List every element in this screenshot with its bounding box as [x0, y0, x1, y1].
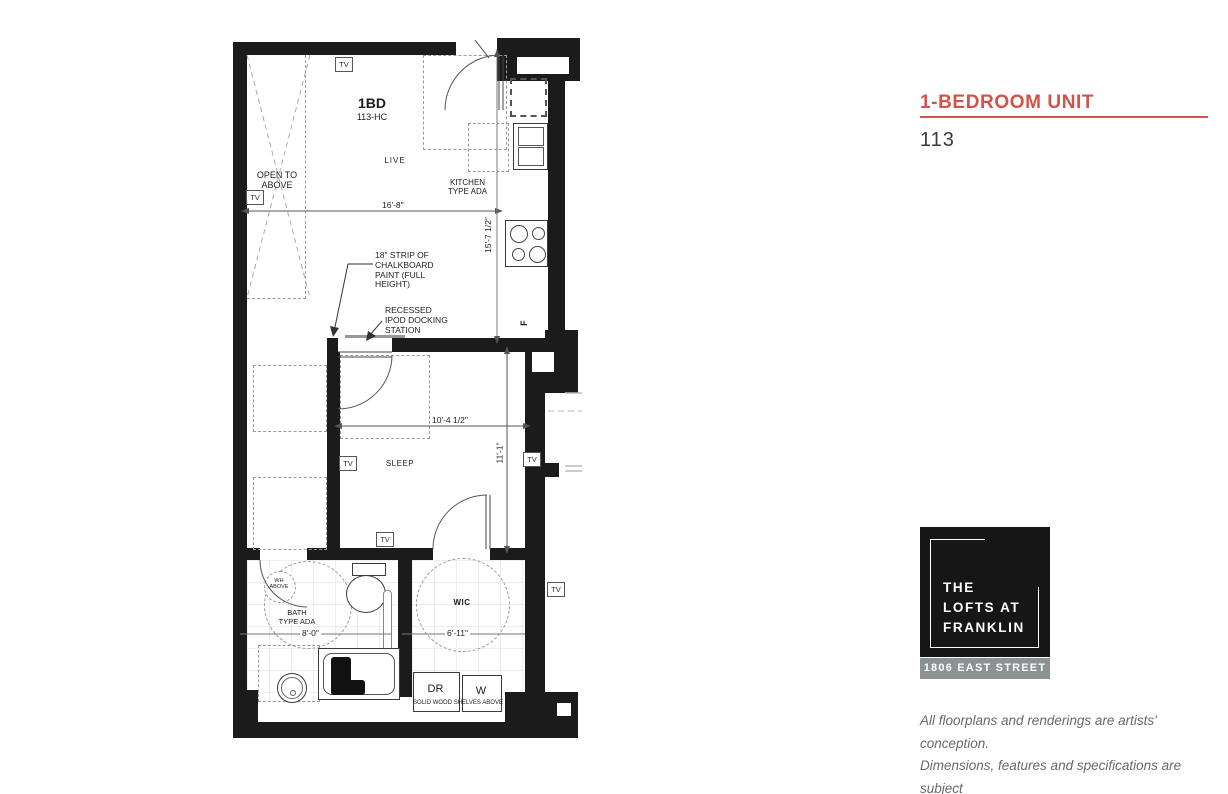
- room-label-open-above: OPEN TO ABOVE: [242, 170, 312, 191]
- room-label-live: LIVE: [370, 156, 420, 165]
- label-dryer: DR: [413, 683, 458, 696]
- dim-sleep-depth: 11'-1": [495, 440, 505, 465]
- dim-bath-width: 8'-0": [300, 628, 321, 638]
- label-wh-above: WH ABOVE: [264, 578, 294, 591]
- dim-kitchen-depth: 15'-7 1/2": [483, 215, 493, 255]
- room-label-wic: WIC: [442, 598, 482, 607]
- unit-label: 1BD: [342, 95, 402, 111]
- label-washer: W: [462, 685, 500, 698]
- room-label-sleep: SLEEP: [370, 459, 430, 468]
- dim-wic-width: 6'-11": [445, 628, 470, 638]
- floorplan: TV TV TV TV TV TV: [230, 30, 582, 742]
- dim-live-width: 16'-8": [380, 200, 406, 210]
- dim-sleep-width: 10'-4 1/2": [430, 415, 470, 425]
- note-ipod-dock: RECESSED IPOD DOCKING STATION: [385, 306, 470, 335]
- address-bar: 1806 EAST STREET: [920, 658, 1050, 679]
- unit-number: 113: [920, 129, 955, 152]
- room-label-bath: BATH TYPE ADA: [267, 609, 327, 626]
- unit-code: 113-HC: [342, 112, 402, 122]
- brochure-page: TV TV TV TV TV TV: [0, 0, 1228, 794]
- disclaimer-text: All floorplans and renderings are artist…: [920, 710, 1220, 794]
- title-underline: [920, 116, 1208, 118]
- label-shelves: SOLID WOOD SHELVES ABOVE: [398, 700, 518, 707]
- lofts-at-franklin-logo: THE LOFTS AT FRANKLIN: [920, 527, 1050, 657]
- label-fridge: F: [519, 313, 529, 333]
- plan-lines: [230, 30, 582, 742]
- room-label-kitchen: KITCHEN TYPE ADA: [435, 178, 500, 196]
- logo-wordmark: THE LOFTS AT FRANKLIN: [943, 578, 1025, 638]
- note-chalkboard: 18" STRIP OF CHALKBOARD PAINT (FULL HEIG…: [375, 251, 450, 290]
- page-title: 1-BEDROOM UNIT: [920, 92, 1210, 114]
